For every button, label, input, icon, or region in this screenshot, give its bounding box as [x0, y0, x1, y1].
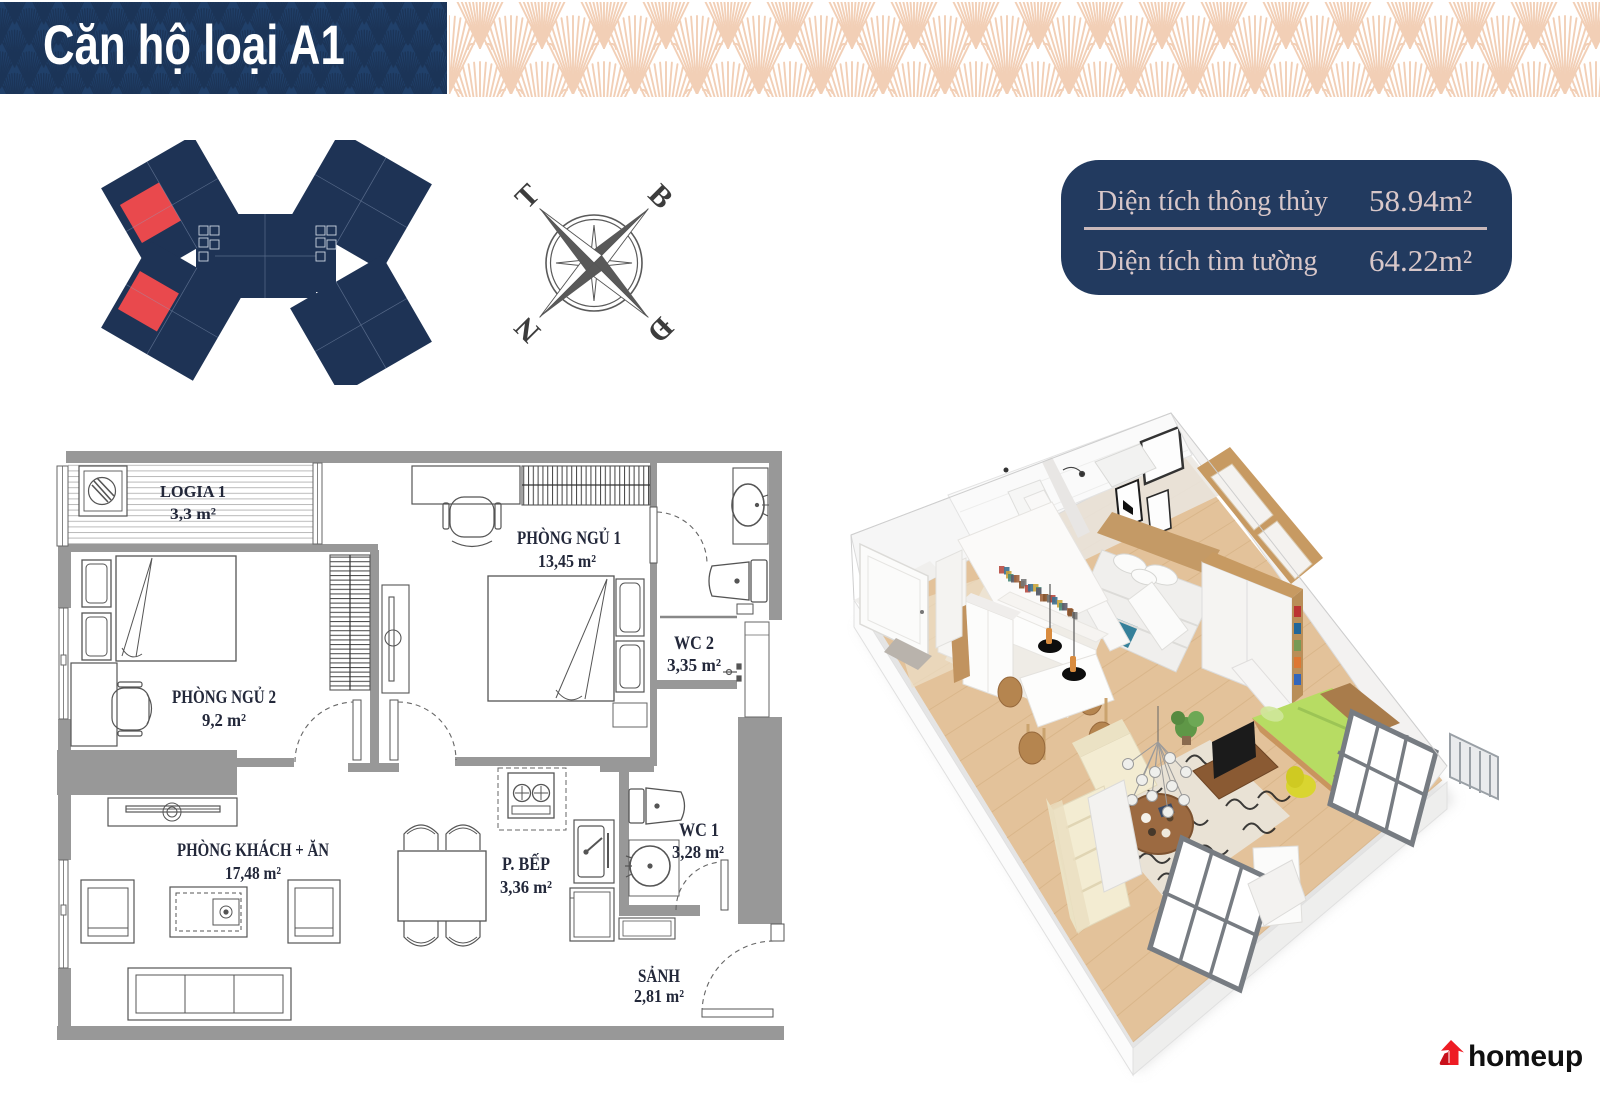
svg-text:3,28 m²: 3,28 m² [672, 842, 724, 862]
svg-text:2,81 m²: 2,81 m² [634, 986, 684, 1006]
svg-text:P. BẾP: P. BẾP [502, 853, 550, 875]
svg-text:SẢNH: SẢNH [638, 966, 680, 987]
svg-text:17,48 m²: 17,48 m² [225, 863, 281, 883]
svg-text:PHÒNG KHÁCH + ĂN: PHÒNG KHÁCH + ĂN [177, 839, 329, 861]
svg-text:LOGIA 1: LOGIA 1 [160, 482, 226, 501]
svg-text:WC 1: WC 1 [679, 820, 719, 841]
svg-text:PHÒNG NGỦ 1: PHÒNG NGỦ 1 [517, 527, 621, 549]
svg-text:3,36 m²: 3,36 m² [500, 877, 552, 897]
svg-text:13,45 m²: 13,45 m² [538, 551, 596, 571]
svg-text:3,35 m²: 3,35 m² [667, 655, 721, 675]
svg-text:3,3 m²: 3,3 m² [170, 506, 216, 523]
svg-text:9,2 m²: 9,2 m² [202, 710, 246, 730]
svg-text:WC 2: WC 2 [674, 633, 714, 654]
svg-text:PHÒNG NGỦ 2: PHÒNG NGỦ 2 [172, 686, 276, 708]
